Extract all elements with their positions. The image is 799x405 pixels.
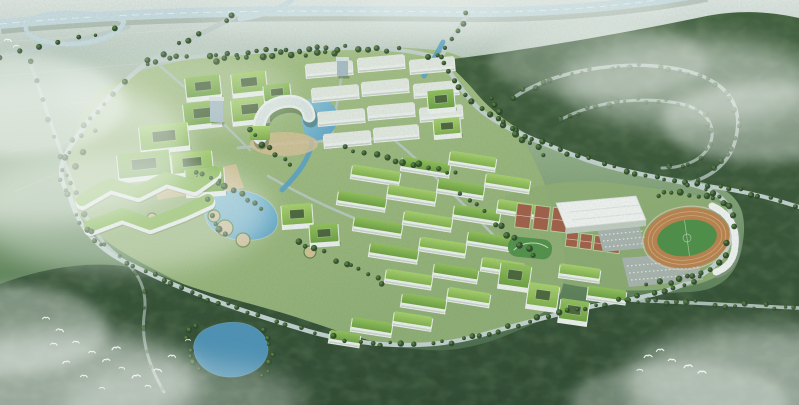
mist-cloud — [55, 50, 295, 134]
aerial-rendering — [0, 0, 799, 405]
mist-cloud — [490, 27, 710, 97]
scene-canvas — [0, 0, 799, 405]
